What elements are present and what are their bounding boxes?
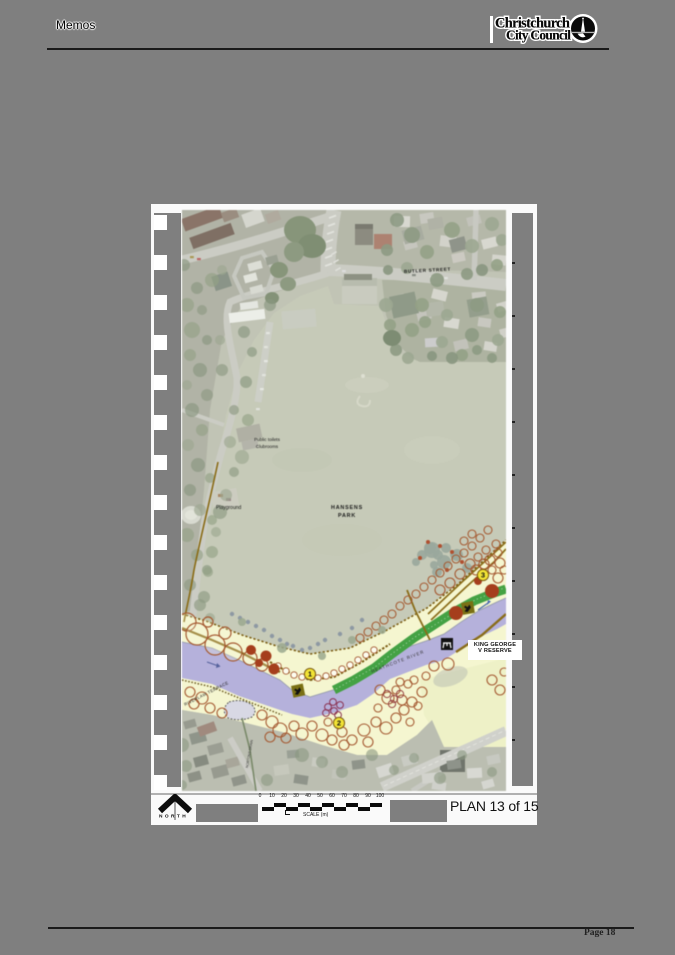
svg-text:Playground: Playground [216, 505, 242, 511]
svg-text:Clubrooms: Clubrooms [256, 444, 279, 449]
svg-text:NORTH: NORTH [159, 814, 188, 820]
svg-text:2: 2 [337, 719, 341, 728]
svg-text:Public toilets: Public toilets [254, 437, 280, 442]
svg-text:HANSENS: HANSENS [331, 505, 363, 511]
svg-text:PARK: PARK [338, 513, 356, 519]
svg-text:1: 1 [308, 670, 312, 679]
svg-text:City Council: City Council [506, 28, 571, 43]
svg-text:3: 3 [481, 571, 485, 580]
